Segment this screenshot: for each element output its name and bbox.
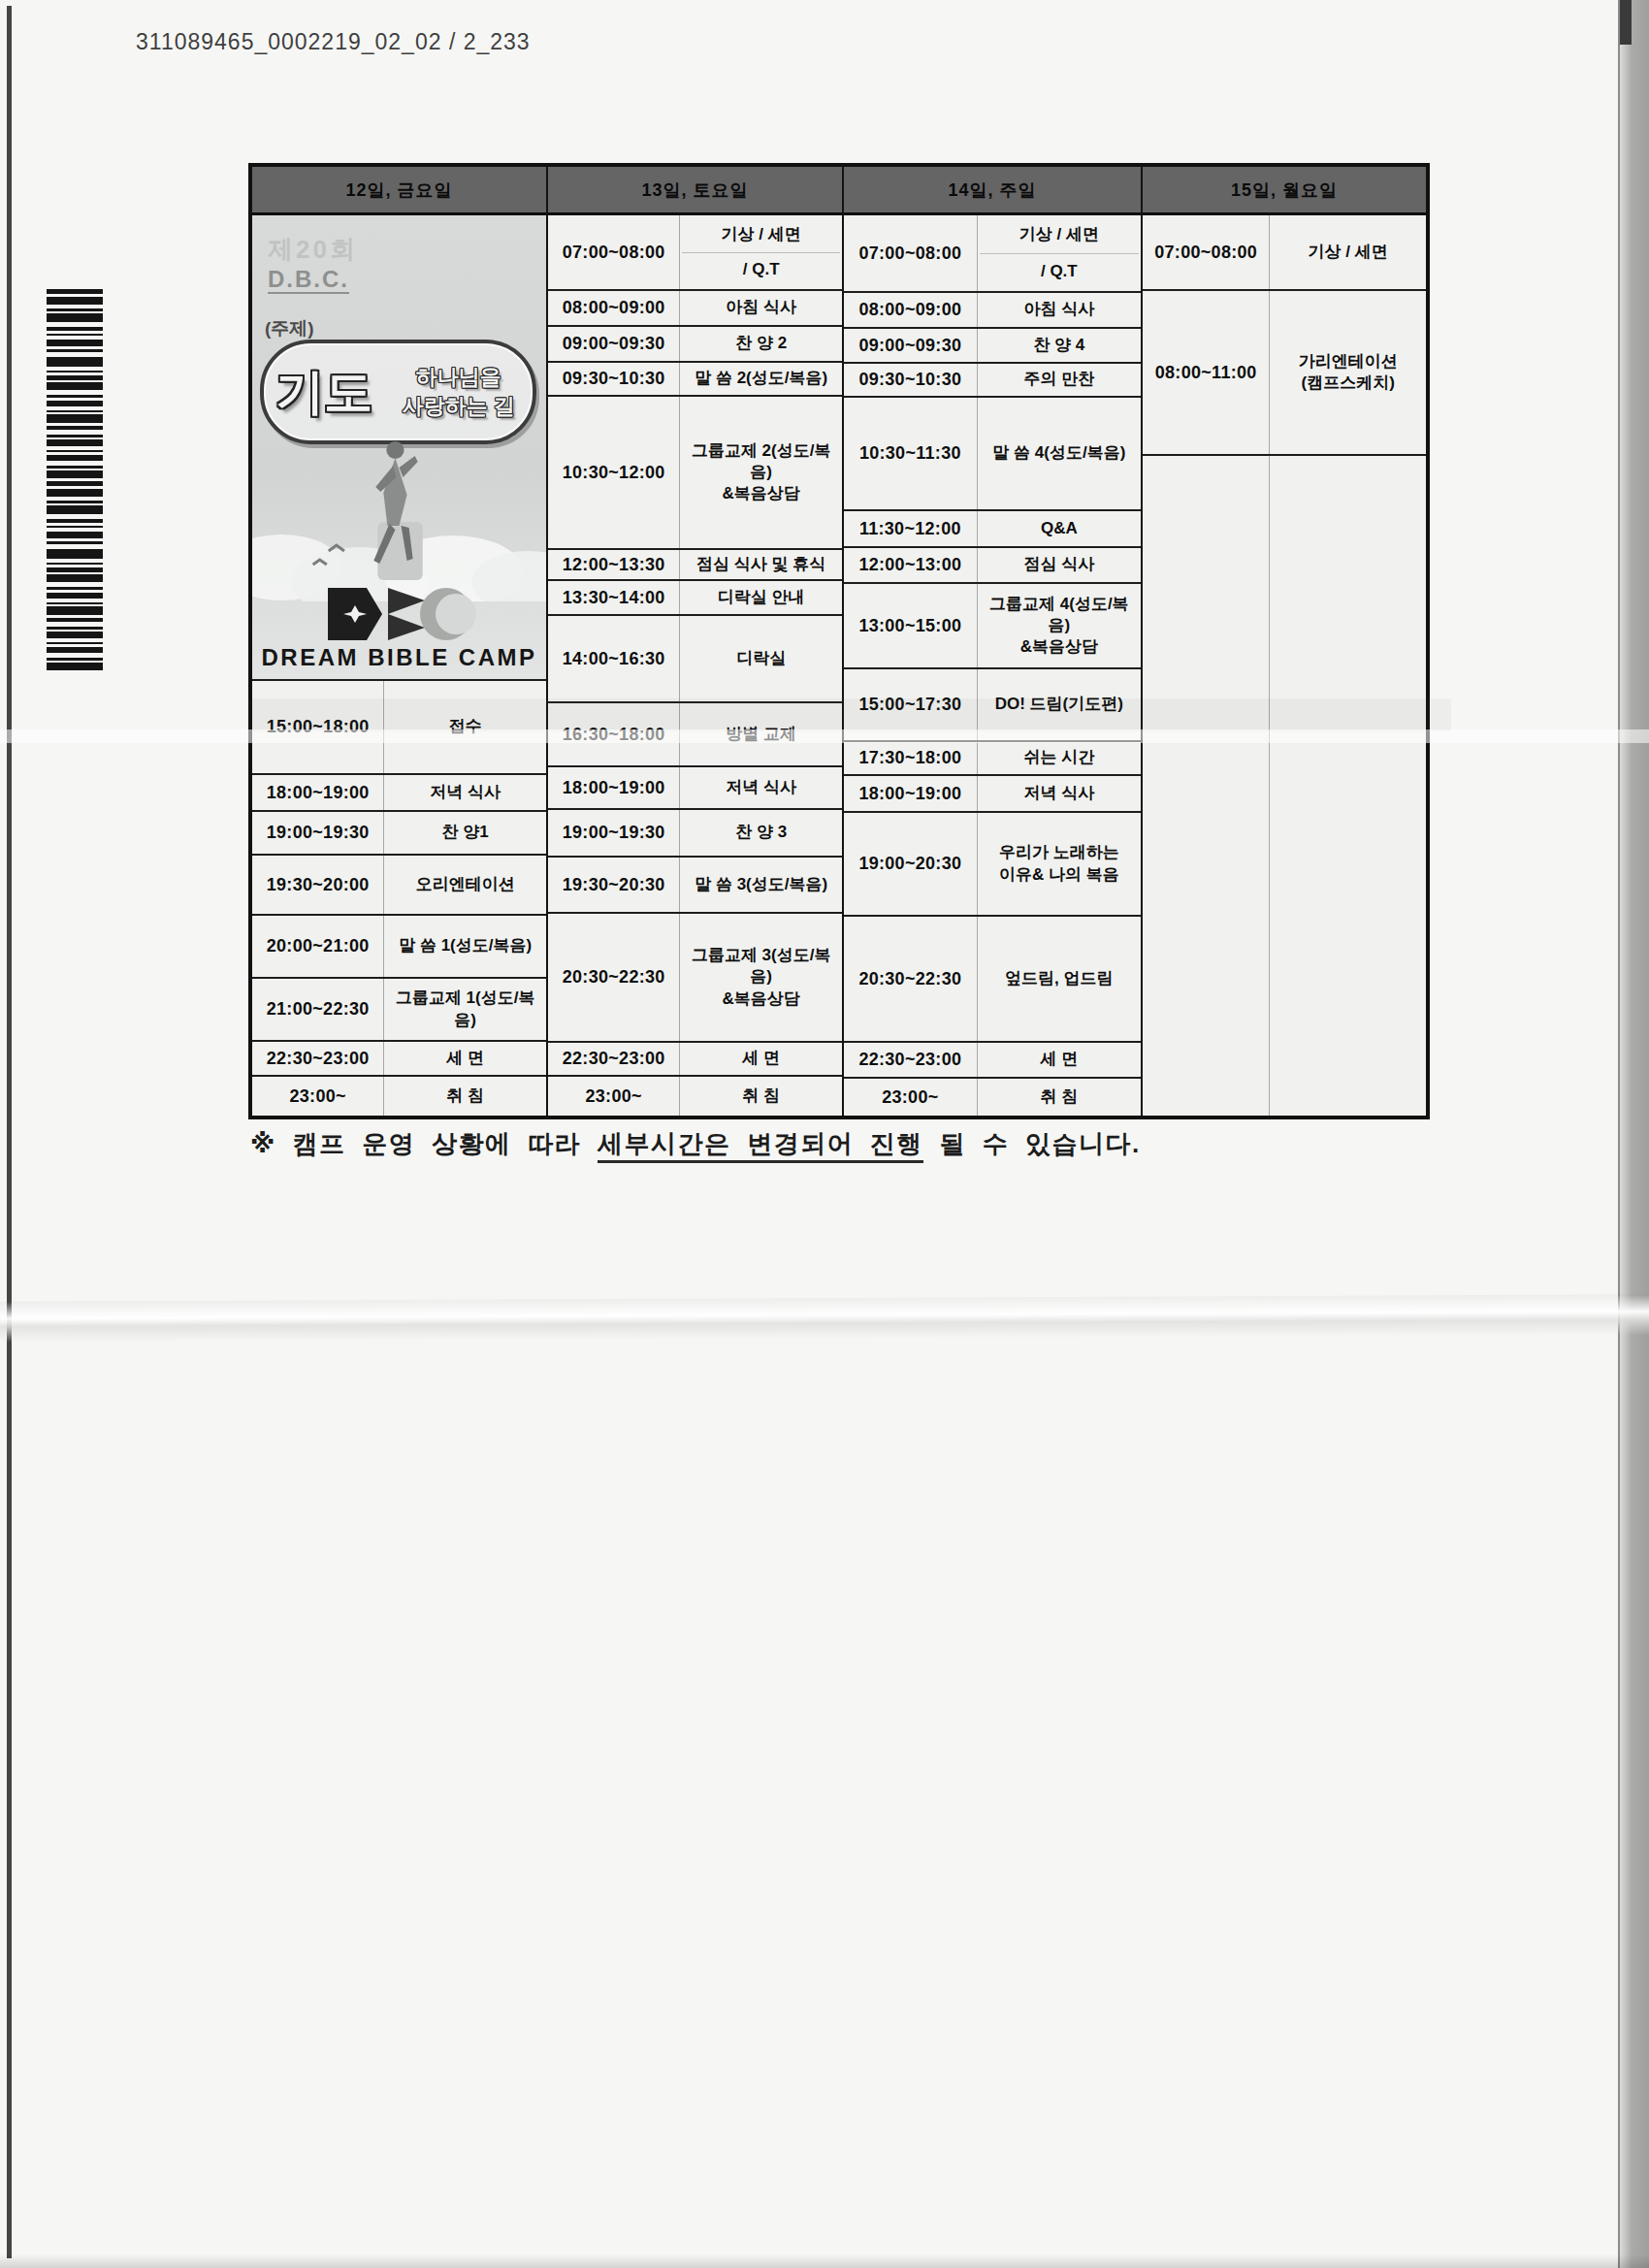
activity-cell: 찬 양 4 <box>978 329 1141 362</box>
activity-cell <box>1270 456 1426 1116</box>
schedule-row: 10:30~12:00그룹교제 2(성도/복음) &복음상담 <box>548 397 842 550</box>
poster-edition: 제20회 <box>268 233 358 267</box>
time-cell: 10:30~11:30 <box>844 398 978 509</box>
friday-rows: 15:00~18:00접수18:00~19:00저녁 식사19:00~19:30… <box>252 681 546 1116</box>
schedule-row: 14:00~16:30디락실 <box>548 616 842 703</box>
dbc-logo <box>322 584 477 644</box>
activity-cell: 말 씀 2(성도/복음) <box>680 363 842 395</box>
schedule-row: 19:00~20:30우리가 노래하는 이유& 나의 복음 <box>844 813 1141 917</box>
schedule-row: 20:30~22:30엎드림, 업드림 <box>844 917 1141 1043</box>
activity-cell: 디락실 <box>680 616 842 701</box>
poster-theme-word: 기도 <box>264 360 385 425</box>
schedule-row: 08:00~09:00아침 식사 <box>844 293 1141 329</box>
activity-cell: 말 씀 3(성도/복음) <box>680 858 842 912</box>
day-header: 13일, 토요일 <box>548 167 842 215</box>
time-cell: 13:30~14:00 <box>548 581 680 614</box>
time-cell: 20:30~22:30 <box>548 914 680 1041</box>
column-sunday: 14일, 주일 07:00~08:00기상 / 세면/ Q.T08:00~09:… <box>842 167 1141 1116</box>
activity-cell: 저녁 식사 <box>680 767 842 808</box>
poster-abbr: D.B.C. <box>268 266 349 293</box>
paper-fold-tear <box>0 1294 1649 1342</box>
activity-cell: 그룹교제 2(성도/복음) &복음상담 <box>680 397 842 548</box>
time-cell: 21:00~22:30 <box>252 979 384 1040</box>
activity-cell: 찬 양1 <box>384 812 546 854</box>
activity-cell: 가리엔테이션 (캠프스케치) <box>1270 291 1426 454</box>
schedule-row: 18:00~19:00저녁 식사 <box>252 775 546 812</box>
schedule-row: 22:30~23:00세 면 <box>252 1042 546 1077</box>
activity-cell: 디락실 안내 <box>680 581 842 614</box>
time-cell: 19:30~20:30 <box>548 858 680 912</box>
time-cell: 23:00~ <box>252 1077 384 1116</box>
activity-cell: Q&A <box>978 511 1141 546</box>
schedule-row: 23:00~취 침 <box>844 1079 1141 1116</box>
time-cell: 20:00~21:00 <box>252 916 384 977</box>
schedule-row: 20:00~21:00말 씀 1(성도/복음) <box>252 916 546 979</box>
schedule-row: 22:30~23:00세 면 <box>844 1043 1141 1079</box>
poster-theme-label: (주제) <box>265 316 314 341</box>
activity-cell: 말 씀 1(성도/복음) <box>384 916 546 977</box>
activity-cell: 아침 식사 <box>680 291 842 325</box>
schedule-row: 21:00~22:30그룹교제 1(성도/복음) <box>252 979 546 1042</box>
activity-cell: 세 면 <box>680 1043 842 1075</box>
time-cell: 19:30~20:00 <box>252 856 384 914</box>
column-monday: 15일, 월요일 07:00~08:00기상 / 세면08:00~11:00가리… <box>1141 167 1426 1116</box>
footer-note-prefix: ※ 캠프 운영 상황에 따라 <box>250 1129 598 1158</box>
time-cell: 12:00~13:30 <box>548 550 680 579</box>
schedule-row: 13:00~15:00그룹교제 4(성도/복음) &복음상담 <box>844 584 1141 669</box>
activity-cell: 말 씀 4(성도/복음) <box>978 398 1141 509</box>
activity-cell: 찬 양 2 <box>680 327 842 361</box>
schedule-row: 12:00~13:00점심 식사 <box>844 548 1141 584</box>
time-cell: 07:00~08:00 <box>548 215 680 289</box>
activity-cell: 기상 / 세면/ Q.T <box>978 215 1141 291</box>
footer-note: ※ 캠프 운영 상황에 따라 세부시간은 변경되어 진행 될 수 있습니다. <box>250 1127 1141 1161</box>
activity-cell: 오리엔테이션 <box>384 856 546 914</box>
column-friday: 12일, 금요일 제20회 D.B.C. (주제) 기도 하나님을 사랑하는 길 <box>252 167 546 1116</box>
activity-cell: 저녁 식사 <box>978 776 1141 811</box>
schedule-row: 07:00~08:00기상 / 세면/ Q.T <box>844 215 1141 293</box>
activity-cell: 세 면 <box>384 1042 546 1075</box>
page-bottom-shadow <box>0 2254 1649 2268</box>
activity-cell: 그룹교제 3(성도/복음) &복음상담 <box>680 914 842 1041</box>
saturday-rows: 07:00~08:00기상 / 세면/ Q.T08:00~09:00아침 식사0… <box>548 215 842 1116</box>
barcode <box>47 289 103 681</box>
activity-cell: 쉬는 시간 <box>978 742 1141 774</box>
schedule-row: 19:30~20:30말 씀 3(성도/복음) <box>548 858 842 914</box>
activity-cell: 아침 식사 <box>978 293 1141 327</box>
activity-cell: 취 침 <box>680 1077 842 1116</box>
schedule-row: 09:30~10:30말 씀 2(성도/복음) <box>548 363 842 397</box>
footer-note-underlined: 세부시간은 변경되어 진행 <box>598 1129 923 1163</box>
activity-cell: 점심 식사 <box>978 548 1141 582</box>
schedule-row: 09:00~09:30찬 양 4 <box>844 329 1141 364</box>
activity-cell: 점심 식사 및 휴식 <box>680 550 842 579</box>
sunday-rows: 07:00~08:00기상 / 세면/ Q.T08:00~09:00아침 식사0… <box>844 215 1141 1116</box>
column-saturday: 13일, 토요일 07:00~08:00기상 / 세면/ Q.T08:00~09… <box>546 167 842 1116</box>
time-cell: 08:00~11:00 <box>1143 291 1270 454</box>
schedule-row: 20:30~22:30그룹교제 3(성도/복음) &복음상담 <box>548 914 842 1043</box>
time-cell: 09:30~10:30 <box>844 364 978 396</box>
schedule-row: 13:30~14:00디락실 안내 <box>548 581 842 616</box>
activity-cell: 찬 양 3 <box>680 810 842 856</box>
time-cell: 19:00~19:30 <box>548 810 680 856</box>
schedule-row: 09:00~09:30찬 양 2 <box>548 327 842 363</box>
monday-rows: 07:00~08:00기상 / 세면08:00~11:00가리엔테이션 (캠프스… <box>1143 215 1426 1116</box>
schedule-row: 12:00~13:30점심 식사 및 휴식 <box>548 550 842 581</box>
time-cell: 19:00~19:30 <box>252 812 384 854</box>
schedule-row: 19:30~20:00오리엔테이션 <box>252 856 546 916</box>
time-cell: 12:00~13:00 <box>844 548 978 582</box>
time-cell: 22:30~23:00 <box>548 1043 680 1075</box>
schedule-row: 11:30~12:00Q&A <box>844 511 1141 548</box>
activity-cell: 그룹교제 4(성도/복음) &복음상담 <box>978 584 1141 667</box>
time-cell: 11:30~12:00 <box>844 511 978 546</box>
schedule-table: 12일, 금요일 제20회 D.B.C. (주제) 기도 하나님을 사랑하는 길 <box>248 163 1430 1119</box>
time-cell: 14:00~16:30 <box>548 616 680 701</box>
time-cell: 18:00~19:00 <box>548 767 680 808</box>
activity-cell: 저녁 식사 <box>384 775 546 810</box>
schedule-row: 18:00~19:00저녁 식사 <box>548 767 842 810</box>
day-header: 14일, 주일 <box>844 167 1141 215</box>
schedule-row: 07:00~08:00기상 / 세면 <box>1143 215 1426 291</box>
day-header: 15일, 월요일 <box>1143 167 1426 215</box>
activity-cell: 우리가 노래하는 이유& 나의 복음 <box>978 813 1141 915</box>
activity-cell: 취 침 <box>384 1077 546 1116</box>
time-cell: 18:00~19:00 <box>252 775 384 810</box>
scan-id: 311089465_0002219_02_02 / 2_233 <box>136 29 531 55</box>
time-cell: 23:00~ <box>844 1079 978 1116</box>
day-header: 12일, 금요일 <box>252 167 546 215</box>
footer-note-suffix: 될 수 있습니다. <box>923 1129 1141 1158</box>
time-cell: 08:00~09:00 <box>844 293 978 327</box>
time-cell: 10:30~12:00 <box>548 397 680 548</box>
activity-cell: 세 면 <box>978 1043 1141 1077</box>
activity-cell: 기상 / 세면 <box>1270 215 1426 289</box>
scanner-edge-line <box>7 6 12 2258</box>
time-cell: 09:00~09:30 <box>548 327 680 361</box>
time-cell: 18:00~19:00 <box>844 776 978 811</box>
time-cell: 22:30~23:00 <box>844 1043 978 1077</box>
activity-cell: 엎드림, 업드림 <box>978 917 1141 1041</box>
activity-cell: 취 침 <box>978 1079 1141 1116</box>
activity-cell: 기상 / 세면/ Q.T <box>680 215 842 289</box>
schedule-row: 22:30~23:00세 면 <box>548 1043 842 1077</box>
time-cell: 08:00~09:00 <box>548 291 680 325</box>
schedule-row: 08:00~09:00아침 식사 <box>548 291 842 327</box>
schedule-row: 17:30~18:00쉬는 시간 <box>844 742 1141 776</box>
schedule-row: 19:00~19:30찬 양1 <box>252 812 546 856</box>
time-cell: 22:30~23:00 <box>252 1042 384 1075</box>
schedule-row: 18:00~19:00저녁 식사 <box>844 776 1141 813</box>
schedule-row: 19:00~19:30찬 양 3 <box>548 810 842 858</box>
time-cell: 07:00~08:00 <box>1143 215 1270 289</box>
poster-theme-subtitle: 하나님을 사랑하는 길 <box>385 363 533 420</box>
time-cell: 07:00~08:00 <box>844 215 978 291</box>
time-cell: 20:30~22:30 <box>844 917 978 1041</box>
time-cell: 13:00~15:00 <box>844 584 978 667</box>
schedule-row: 08:00~11:00가리엔테이션 (캠프스케치) <box>1143 291 1426 456</box>
time-cell: 19:00~20:30 <box>844 813 978 915</box>
schedule-row: 23:00~취 침 <box>252 1077 546 1116</box>
poster-theme-bubble: 기도 하나님을 사랑하는 길 <box>260 340 536 444</box>
praying-figure-illustration <box>252 437 546 601</box>
camp-poster: 제20회 D.B.C. (주제) 기도 하나님을 사랑하는 길 <box>252 215 546 681</box>
time-cell: 23:00~ <box>548 1077 680 1116</box>
activity-cell: 그룹교제 1(성도/복음) <box>384 979 546 1040</box>
time-cell <box>1143 456 1270 1116</box>
activity-cell: 주의 만찬 <box>978 364 1141 396</box>
paper-crease <box>0 729 1649 743</box>
scanner-edge-strip <box>1620 0 1649 2268</box>
schedule-row: 23:00~취 침 <box>548 1077 842 1116</box>
time-cell: 09:00~09:30 <box>844 329 978 362</box>
schedule-row: 07:00~08:00기상 / 세면/ Q.T <box>548 215 842 291</box>
schedule-row: 10:30~11:30말 씀 4(성도/복음) <box>844 398 1141 511</box>
time-cell: 09:30~10:30 <box>548 363 680 395</box>
paper-crease-shadow <box>248 698 1451 731</box>
time-cell: 17:30~18:00 <box>844 742 978 774</box>
scanned-page: 311089465_0002219_02_02 / 2_233 12일, 금요일… <box>0 0 1649 2268</box>
schedule-row <box>1143 456 1426 1116</box>
schedule-row: 09:30~10:30주의 만찬 <box>844 364 1141 398</box>
camp-name: DREAM BIBLE CAMP <box>256 644 542 671</box>
